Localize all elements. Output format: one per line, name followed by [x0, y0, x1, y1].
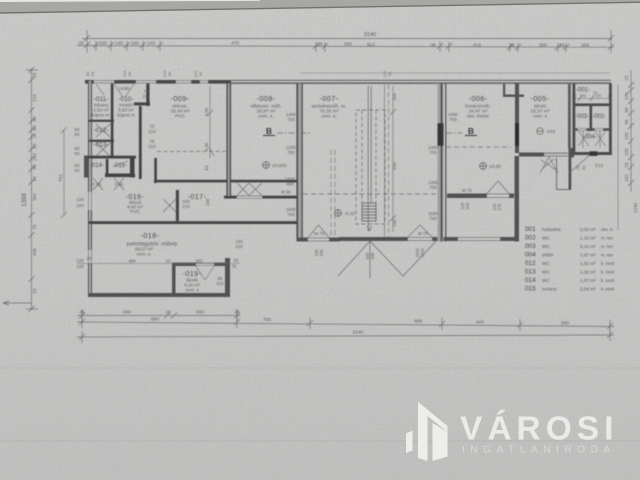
svg-text:015: 015: [525, 286, 536, 293]
svg-text:700: 700: [429, 216, 437, 221]
svg-text:kúpos m: kúpos m: [117, 113, 135, 118]
svg-text:-009-: -009-: [171, 94, 190, 103]
svg-text:WC: WC: [542, 236, 550, 241]
svg-text:2350: 2350: [420, 248, 425, 258]
svg-text:695: 695: [392, 162, 397, 170]
svg-text:k. mett: k. mett: [601, 278, 615, 283]
svg-text:140: 140: [115, 41, 123, 47]
svg-text:003: 003: [525, 243, 536, 250]
svg-text:INGATLANIRODA: INGATLANIRODA: [462, 445, 616, 456]
svg-text:50: 50: [167, 71, 172, 76]
svg-text:25: 25: [624, 162, 629, 168]
svg-text:014: 014: [525, 277, 536, 284]
svg-text:-0,15: -0,15: [344, 211, 355, 217]
svg-text:M 70: M 70: [418, 231, 428, 236]
svg-text:900: 900: [286, 182, 294, 187]
svg-text:-005-: -005-: [531, 94, 550, 103]
svg-text:210: 210: [148, 144, 156, 149]
svg-text:25: 25: [32, 72, 37, 78]
svg-text:700: 700: [287, 117, 295, 122]
svg-text:m. ker: m. ker: [601, 244, 614, 249]
svg-text:cem. s: cem. s: [533, 115, 548, 120]
svg-text:cem. s.: cem. s.: [137, 252, 152, 257]
svg-text:205: 205: [581, 43, 589, 49]
svg-text:210: 210: [32, 94, 37, 102]
svg-text:-017-: -017-: [188, 194, 207, 201]
svg-text:25: 25: [234, 310, 240, 316]
svg-text:cem. s: cem. s: [185, 288, 199, 293]
svg-text:560: 560: [561, 321, 569, 327]
svg-text:zuhany: zuhany: [542, 287, 558, 292]
svg-text:k. mett: k. mett: [601, 270, 615, 275]
svg-text:205: 205: [319, 249, 324, 257]
svg-text:25: 25: [78, 41, 84, 47]
svg-text:sim. beton: sim. beton: [467, 114, 489, 120]
svg-text:1,10 m²: 1,10 m²: [580, 236, 596, 241]
svg-text:1,02 m²: 1,02 m²: [580, 261, 596, 266]
svg-text:120: 120: [76, 197, 84, 202]
svg-text:105: 105: [624, 132, 629, 140]
svg-text:395: 395: [344, 42, 352, 48]
svg-text:415: 415: [473, 43, 481, 49]
svg-text:-007-: -007-: [320, 94, 339, 103]
svg-text:±0,000: ±0,000: [272, 163, 287, 169]
svg-text:25: 25: [32, 288, 37, 294]
svg-text:105: 105: [392, 93, 397, 101]
svg-text:470: 470: [231, 41, 239, 47]
svg-text:-006-: -006-: [469, 94, 488, 103]
svg-text:14/90: 14/90: [119, 86, 130, 91]
svg-text:90: 90: [624, 107, 629, 113]
svg-text:-015: -015: [546, 129, 556, 134]
svg-text:120: 120: [76, 258, 84, 263]
svg-text:752: 752: [58, 174, 63, 182]
svg-text:34 75: 34 75: [314, 231, 326, 236]
svg-text:210: 210: [148, 129, 156, 134]
svg-text:-018-: -018-: [141, 231, 160, 240]
svg-text:k. mett: k. mett: [601, 261, 615, 266]
svg-text:888: 888: [414, 319, 422, 325]
svg-text:5,10 m²: 5,10 m²: [580, 244, 596, 249]
svg-text:cem. s.: cem. s.: [258, 115, 273, 120]
svg-text:WC: WC: [542, 270, 550, 275]
svg-text:160: 160: [131, 41, 139, 47]
svg-text:2,67 m²: 2,67 m²: [580, 253, 596, 258]
svg-text:362: 362: [32, 193, 37, 201]
svg-text:700: 700: [429, 185, 437, 190]
svg-text:60: 60: [32, 125, 37, 131]
svg-text:102: 102: [32, 153, 37, 161]
svg-text:60: 60: [75, 151, 80, 156]
svg-text:012: 012: [525, 260, 536, 267]
svg-text:002: 002: [525, 235, 536, 242]
svg-text:±0,00: ±0,00: [489, 164, 501, 170]
svg-text:105: 105: [624, 92, 629, 100]
svg-text:2240: 2240: [633, 202, 638, 213]
svg-text:-008-: -008-: [257, 94, 276, 103]
svg-text:38: 38: [430, 43, 436, 49]
svg-text:75: 75: [32, 224, 37, 230]
svg-text:210: 210: [143, 94, 151, 99]
svg-text:140: 140: [76, 264, 84, 269]
svg-text:sim. b: sim. b: [601, 227, 613, 232]
svg-text:25: 25: [87, 256, 92, 261]
svg-text:M 70: M 70: [462, 188, 472, 193]
svg-text:10: 10: [165, 310, 171, 316]
svg-text:m. ker: m. ker: [601, 236, 614, 241]
svg-text:700: 700: [287, 212, 295, 217]
svg-text:10: 10: [32, 133, 37, 139]
svg-text:-003-: -003-: [575, 114, 589, 120]
svg-text:162: 162: [624, 174, 629, 182]
svg-text:hulladékt.: hulladékt.: [542, 227, 562, 232]
svg-text:275: 275: [497, 203, 502, 211]
svg-text:440: 440: [476, 320, 484, 326]
svg-text:VÁROSI: VÁROSI: [460, 410, 618, 448]
svg-text:3140: 3140: [364, 32, 376, 38]
svg-text:700: 700: [449, 117, 457, 122]
svg-text:1398: 1398: [22, 193, 28, 207]
svg-text:499: 499: [370, 252, 375, 260]
svg-text:700: 700: [287, 150, 295, 155]
svg-text:F 90: F 90: [93, 182, 102, 187]
svg-text:25: 25: [234, 258, 239, 263]
svg-text:210: 210: [216, 281, 224, 286]
svg-text:140: 140: [147, 41, 155, 47]
svg-text:25: 25: [79, 310, 85, 316]
svg-text:3140: 3140: [353, 330, 364, 336]
svg-text:25: 25: [509, 43, 515, 49]
svg-text:60: 60: [75, 132, 80, 137]
svg-text:WC: WC: [542, 278, 550, 283]
svg-text:F 90: F 90: [115, 182, 124, 187]
svg-text:300: 300: [196, 310, 204, 316]
svg-text:300: 300: [539, 43, 547, 49]
svg-text:-001-: -001-: [576, 88, 590, 94]
svg-text:98: 98: [32, 164, 37, 170]
svg-text:2,04 m²: 2,04 m²: [580, 287, 596, 292]
svg-text:300: 300: [195, 259, 203, 264]
svg-text:-012-: -012-: [94, 127, 109, 134]
svg-text:k. mett: k. mett: [601, 287, 615, 292]
svg-text:105: 105: [624, 148, 629, 156]
svg-text:kúpos m.: kúpos m.: [92, 113, 111, 118]
svg-text:M 90: M 90: [281, 190, 291, 195]
svg-text:30: 30: [32, 176, 37, 182]
svg-text:150: 150: [392, 219, 397, 227]
svg-text:WC: WC: [542, 261, 550, 266]
svg-text:765: 765: [263, 317, 271, 323]
svg-text:60: 60: [127, 71, 132, 76]
svg-text:-014-: -014-: [90, 163, 104, 169]
svg-text:700: 700: [429, 150, 437, 155]
svg-text:100: 100: [595, 94, 601, 98]
svg-text:64: 64: [204, 165, 209, 170]
svg-text:4,40: 4,40: [204, 142, 209, 151]
svg-text:PVC: PVC: [130, 209, 140, 214]
svg-text:822: 822: [367, 42, 375, 48]
svg-text:1,07 m²: 1,07 m²: [580, 278, 596, 283]
svg-text:210: 210: [182, 204, 190, 209]
svg-text:880: 880: [151, 317, 159, 323]
svg-text:1,02 m²: 1,02 m²: [580, 270, 596, 275]
svg-text:60: 60: [75, 168, 80, 173]
svg-text:50: 50: [387, 71, 392, 76]
svg-text:-004-: -004-: [583, 135, 597, 141]
svg-text:490: 490: [123, 310, 131, 316]
svg-text:001: 001: [525, 226, 536, 233]
svg-text:WC: WC: [542, 244, 550, 249]
svg-text:85: 85: [32, 143, 37, 149]
svg-text:2,63 m²: 2,63 m²: [580, 227, 596, 232]
svg-text:B: B: [468, 126, 474, 136]
svg-text:PVC: PVC: [175, 114, 185, 120]
svg-text:75: 75: [232, 264, 237, 269]
svg-text:-002-: -002-: [592, 114, 606, 120]
svg-text:245: 245: [465, 202, 470, 210]
svg-text:25: 25: [559, 43, 565, 49]
svg-text:cem. s.: cem. s.: [321, 115, 336, 120]
svg-text:210: 210: [235, 244, 243, 249]
svg-text:25: 25: [624, 75, 629, 81]
svg-text:B: B: [266, 126, 272, 136]
svg-text:95: 95: [624, 119, 629, 125]
svg-text:140: 140: [76, 203, 84, 208]
svg-text:100: 100: [99, 41, 107, 47]
svg-text:90: 90: [32, 116, 37, 122]
svg-text:004: 004: [525, 252, 536, 259]
svg-text:445: 445: [32, 248, 37, 256]
svg-text:előtér: előtér: [542, 253, 554, 258]
svg-text:25: 25: [317, 42, 323, 48]
svg-text:50: 50: [198, 71, 203, 76]
svg-text:10: 10: [166, 259, 171, 264]
svg-text:S13: S13: [595, 163, 604, 168]
svg-text:490: 490: [128, 259, 136, 264]
svg-text:m. ker: m. ker: [601, 253, 614, 258]
svg-text:013: 013: [525, 269, 536, 276]
svg-text:230: 230: [205, 198, 210, 206]
svg-text:60: 60: [90, 71, 95, 76]
